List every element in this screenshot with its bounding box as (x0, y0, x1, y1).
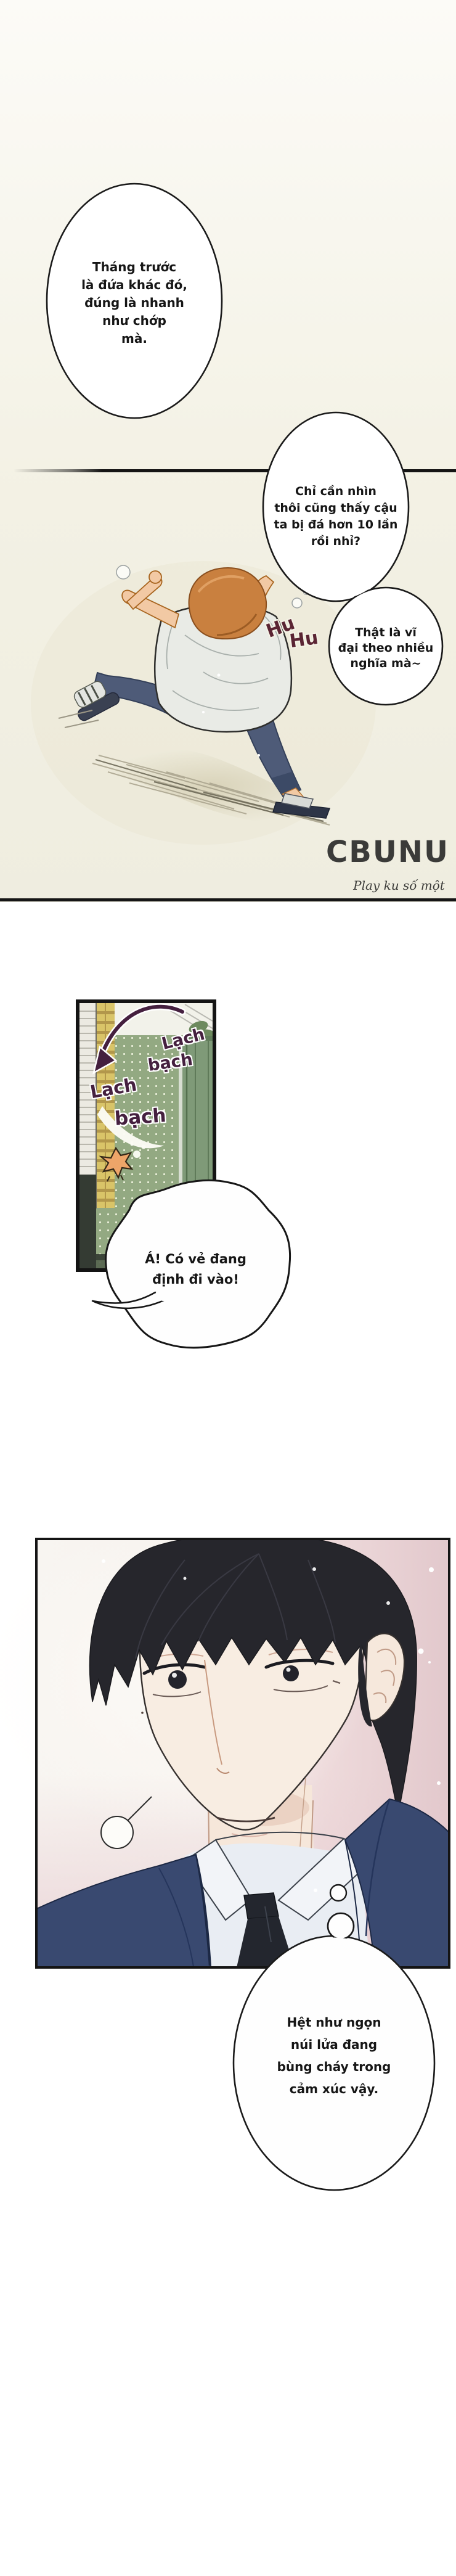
speech-line: nghĩa mà~ (318, 656, 454, 671)
speech-line: Á! Có vẻ đang (108, 1249, 283, 1270)
speech-line: đại theo nhiều (318, 641, 454, 656)
running-scene-artwork (0, 0, 456, 902)
speech-line: thôi cũng thấy cậu (262, 500, 410, 517)
portrait-panel-content (0, 1538, 449, 1967)
speech-bubble-1-text: Tháng trước là đứa khác đó, đúng là nhan… (60, 258, 208, 348)
speech-line: rồi nhỉ? (262, 533, 410, 550)
speech-line: là đứa khác đó, (60, 276, 208, 294)
speech-line: ta bị đá hơn 10 lần (262, 517, 410, 533)
speech-line: Chỉ cần nhìn (262, 483, 410, 500)
speech-line: bùng cháy trong (263, 2056, 405, 2078)
speech-line: núi lửa đang (263, 2033, 405, 2056)
speech-bubble-2-text: Chỉ cần nhìn thôi cũng thấy cậu ta bị đá… (262, 483, 410, 550)
speech-line: cảm xúc vậy. (263, 2078, 405, 2100)
highlight-circle (101, 1816, 133, 1848)
speech-line: Tháng trước (60, 258, 208, 276)
sfx-lach-left-2: bạch (114, 1104, 167, 1130)
speech-line: mà. (60, 330, 208, 348)
comic-page: Tháng trước là đứa khác đó, đúng là nhan… (0, 0, 456, 2576)
speech-line: Hệt như ngọn (263, 2011, 405, 2033)
speech-bubble-4-text: Á! Có vẻ đang định đi vào! (108, 1249, 283, 1290)
door-panel-artwork (0, 902, 456, 1538)
thought-bubble-5-text: Hệt như ngọn núi lửa đang bùng cháy tron… (263, 2011, 405, 2100)
speech-line: đúng là nhanh (60, 294, 208, 312)
watermark-brand: CBUNU (323, 835, 452, 869)
speech-line: định đi vào! (108, 1270, 283, 1290)
section-divider-line (0, 898, 456, 901)
speech-line: Thật là vĩ (318, 625, 454, 641)
sfx-huhu-2: Hu (288, 627, 320, 652)
speech-bubble-3-text: Thật là vĩ đại theo nhiều nghĩa mà~ (318, 625, 454, 671)
watermark-tagline: Play ku số một (345, 878, 453, 893)
speech-line: như chớp (60, 312, 208, 330)
